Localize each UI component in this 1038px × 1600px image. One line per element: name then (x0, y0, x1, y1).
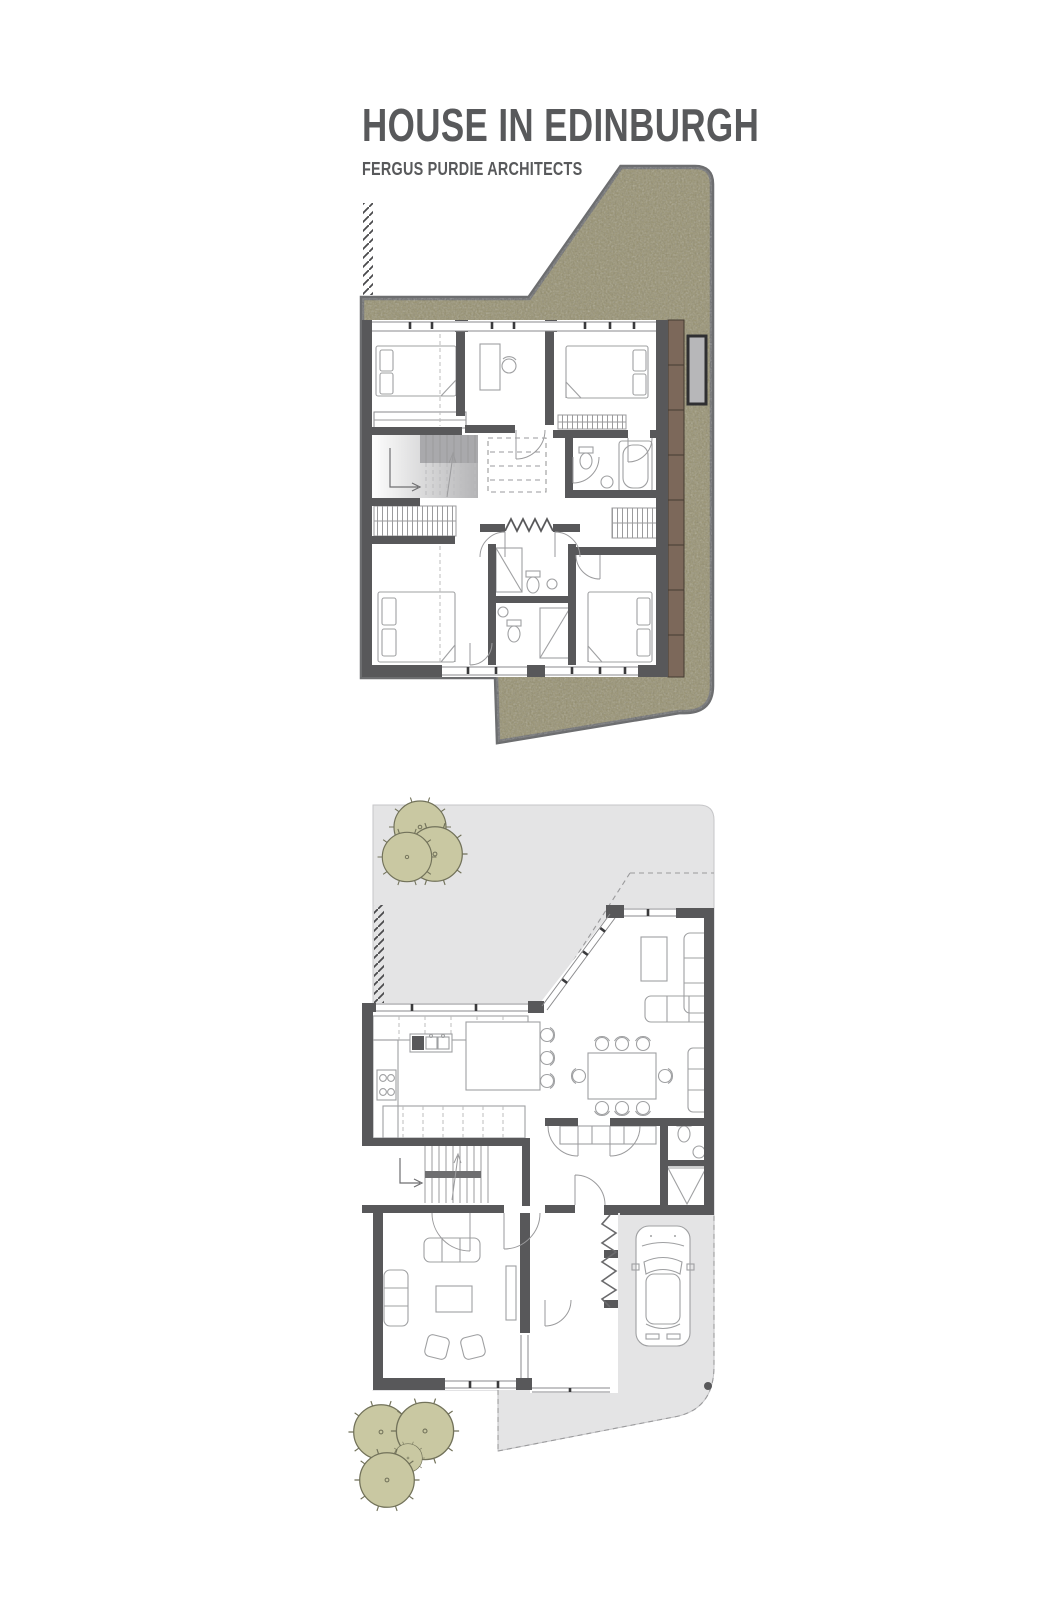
tree-icon (348, 1399, 459, 1511)
kitchen-island (466, 1022, 540, 1090)
car-icon (632, 1226, 694, 1346)
drawing-sheet: HOUSE IN EDINBURGH FERGUS PURDIE ARCHITE… (0, 0, 1038, 1600)
bed-icon (588, 592, 652, 662)
bed-icon (566, 346, 648, 398)
bollard-icon (704, 1382, 712, 1390)
staircase (372, 435, 478, 498)
architect-name: FERGUS PURDIE ARCHITECTS (362, 159, 582, 180)
boundary-hatch-icon (374, 905, 384, 1010)
ground-floor-plan (348, 798, 714, 1511)
boundary-hatch-icon (363, 203, 373, 295)
page-title: HOUSE IN EDINBURGH (362, 98, 759, 152)
dining-table (588, 1053, 656, 1099)
floor-plans-drawing (0, 0, 1038, 1600)
rooflight-icon (688, 336, 706, 404)
bed-icon (376, 346, 456, 396)
bed-icon (378, 592, 455, 662)
timber-deck-strip (668, 320, 684, 677)
hob-icon (377, 1070, 396, 1100)
upper-floor-plan (350, 155, 725, 755)
sink-icon (410, 1034, 452, 1052)
